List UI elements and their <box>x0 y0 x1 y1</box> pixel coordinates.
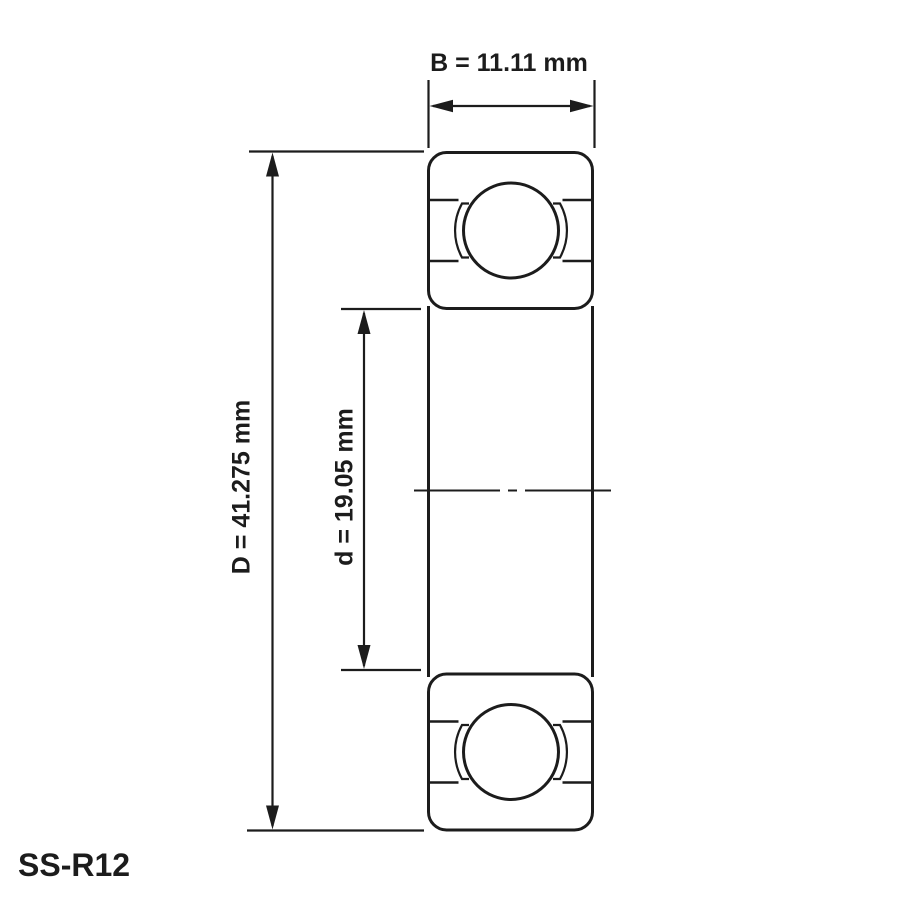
ball-bottom <box>464 705 559 800</box>
dimension-D-label: D = 41.275 mm <box>227 400 255 574</box>
arrowhead-D-bottom <box>266 806 279 830</box>
part-number-label: SS-R12 <box>18 847 130 883</box>
arrowhead-d-bottom <box>358 645 371 669</box>
ring-section-top <box>429 153 593 309</box>
ring-section-bottom <box>429 674 593 830</box>
drawing-svg: B = 11.11 mm D = 41.275 mm d = 19.05 mm … <box>0 0 900 900</box>
dimension-d-label: d = 19.05 mm <box>330 408 358 566</box>
dimension-B: B = 11.11 mm <box>429 49 595 148</box>
dimension-B-label: B = 11.11 mm <box>430 49 588 77</box>
arrowhead-B-right <box>570 100 594 112</box>
arrowhead-D-top <box>266 153 279 177</box>
arrowhead-d-top <box>358 310 371 334</box>
arrowhead-B-left <box>430 100 454 112</box>
dimension-D: D = 41.275 mm <box>227 152 424 831</box>
dimension-d: d = 19.05 mm <box>330 309 421 670</box>
bearing-cross-section <box>414 153 611 831</box>
ball-top <box>464 183 559 278</box>
bearing-technical-drawing: B = 11.11 mm D = 41.275 mm d = 19.05 mm … <box>0 0 900 900</box>
